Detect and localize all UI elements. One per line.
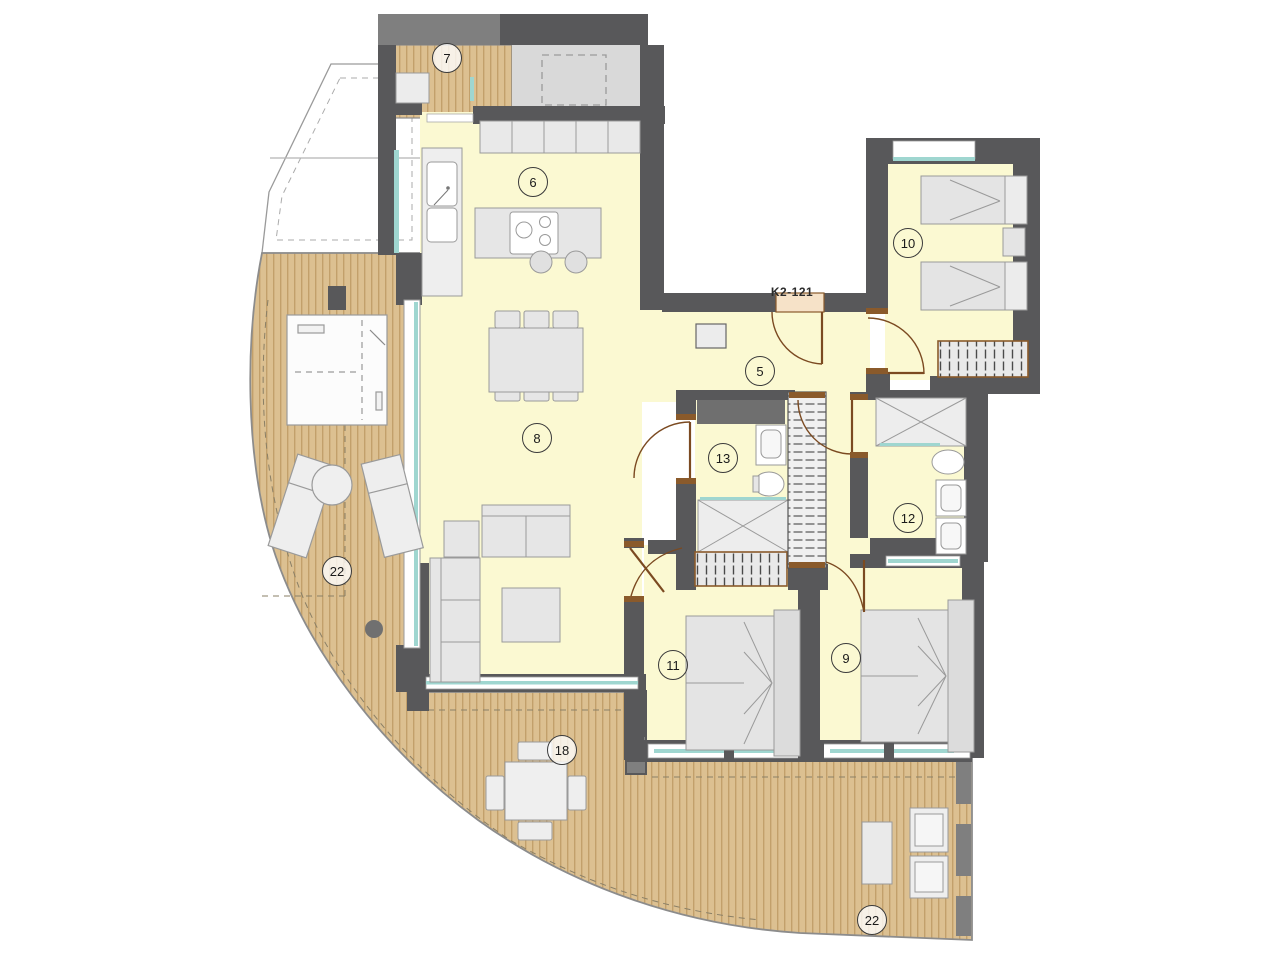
wardrobe [695, 552, 787, 586]
room-number: 12 [901, 511, 915, 526]
bedroom11-furniture [686, 610, 800, 756]
room-number: 13 [716, 451, 730, 466]
room-number: 6 [529, 175, 536, 190]
outdoor-table [505, 762, 567, 820]
room-number: 22 [330, 564, 344, 579]
washing-machine [396, 73, 429, 103]
room-number: 7 [443, 51, 450, 66]
room-label-13: 13 [708, 443, 738, 473]
room-label-22-left: 22 [322, 556, 352, 586]
toilet [932, 450, 964, 474]
nightstand [1003, 228, 1025, 256]
room-number: 9 [842, 651, 849, 666]
room-label-22-bottom: 22 [857, 905, 887, 935]
room-number: 22 [865, 913, 879, 928]
deck-column [365, 620, 383, 638]
armchair [444, 521, 479, 557]
unit-label: K2-121 [752, 285, 832, 299]
room-label-5: 5 [745, 356, 775, 386]
bar-stool [530, 251, 552, 273]
room-number: 18 [555, 743, 569, 758]
cooktop [510, 212, 558, 254]
room-label-8: 8 [522, 423, 552, 453]
electrical-cabinet [696, 324, 726, 348]
floor-plan-svg [0, 0, 1280, 960]
bedroom9-furniture [861, 600, 974, 752]
kitchen-sink [427, 162, 457, 206]
room-number: 8 [533, 431, 540, 446]
room-label-9: 9 [831, 643, 861, 673]
headboard [774, 610, 800, 756]
single-bed [921, 176, 1005, 224]
coffee-table [502, 588, 560, 642]
terrace-railing [956, 762, 971, 936]
sofa [430, 558, 480, 682]
shelved-closet [788, 392, 826, 568]
bath13-door-swing [634, 422, 690, 478]
room-number: 10 [901, 236, 915, 251]
room-label-10: 10 [893, 228, 923, 258]
room-label-12: 12 [893, 503, 923, 533]
bar-stool [565, 251, 587, 273]
wardrobe [938, 341, 1028, 377]
kitchen-counter-top [480, 121, 640, 153]
room-number: 11 [666, 658, 680, 673]
dining-table [489, 328, 583, 392]
round-table [312, 465, 352, 505]
room-number: 5 [756, 364, 763, 379]
hall-sideboard [697, 400, 785, 424]
floor-plan: 7 6 10 5 8 13 12 22 11 9 18 22 K2-121 [0, 0, 1280, 960]
side-table [862, 822, 892, 884]
room-label-18: 18 [547, 735, 577, 765]
room-label-6: 6 [518, 167, 548, 197]
room-label-11: 11 [658, 650, 688, 680]
headboard [948, 600, 974, 752]
dining-set [489, 311, 583, 401]
room-label-7: 7 [432, 43, 462, 73]
single-bed [921, 262, 1005, 310]
